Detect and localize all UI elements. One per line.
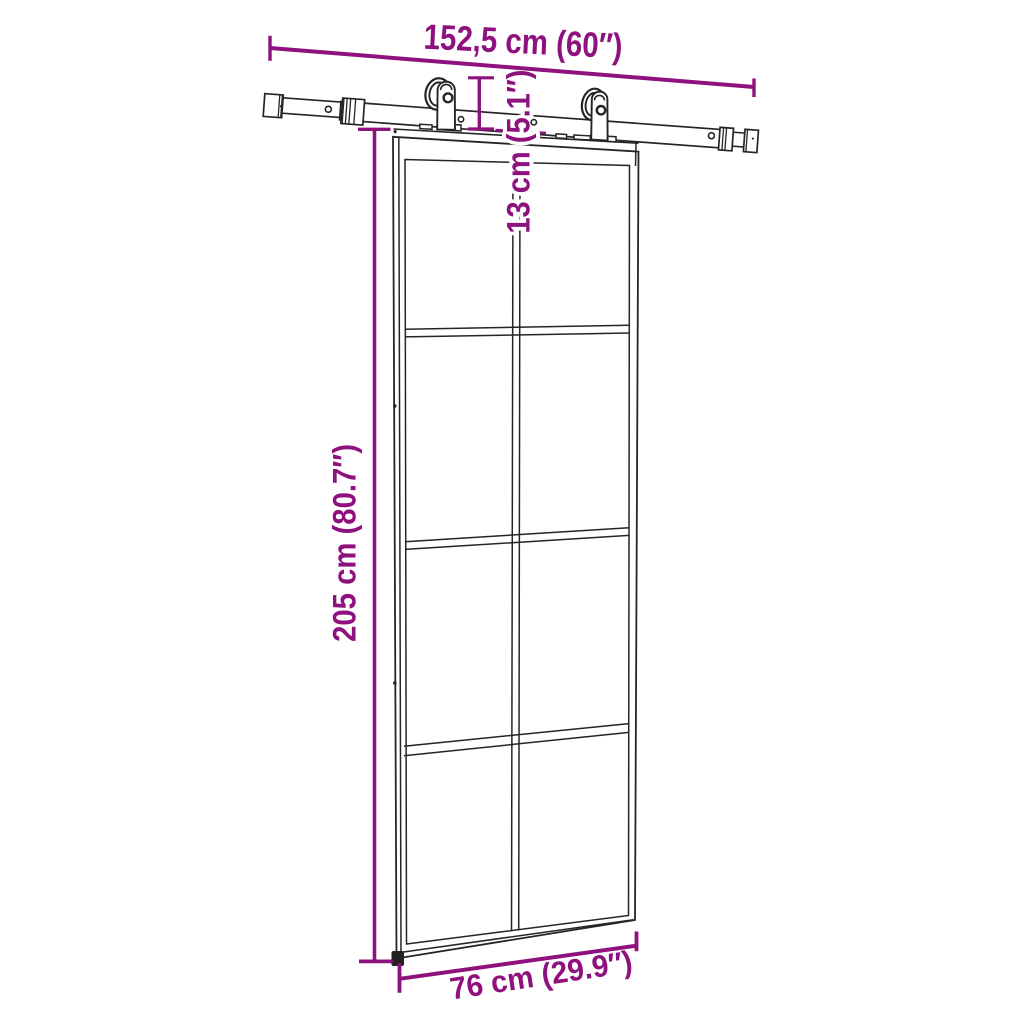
svg-text:205 cm (80.7″): 205 cm (80.7″) <box>327 444 363 642</box>
svg-text:13 cm (5.1″): 13 cm (5.1″) <box>501 70 537 234</box>
